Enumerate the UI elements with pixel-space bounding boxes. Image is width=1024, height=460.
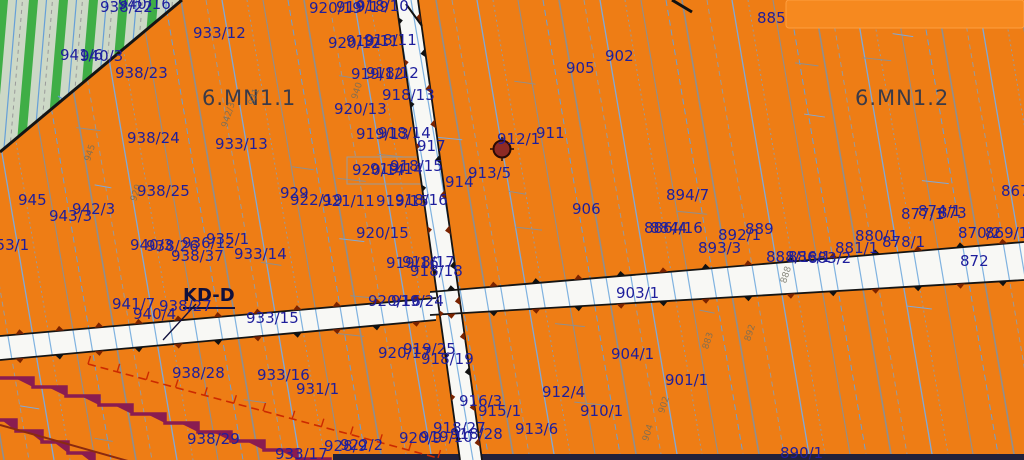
parcel-label: 903/1 [616,286,659,302]
zone-label-mn12: 6.MN1.2 [855,86,949,110]
parcel-label: 905 [566,61,595,77]
parcel-label: 933/15 [246,311,299,327]
parcel-label: 902 [605,49,634,65]
faint-parcel-label: 940 [350,81,365,100]
parcel-label: 918/28 [450,427,503,443]
parcel-label: 918/12 [366,66,419,82]
parcel-label: 938/25 [137,184,190,200]
parcel-label: 933/12 [193,26,246,42]
parcel-label: 893/3 [698,241,741,257]
map-canvas[interactable]: 6.MN1.1 6.MN1.2 KD-D 938/22940/16933/129… [0,0,1024,460]
parcel-label: 904/1 [611,347,654,363]
parcel-label: 918/10 [356,0,409,15]
parcel-label: 938/23 [115,66,168,82]
parcel-label: 911 [536,126,565,142]
faint-parcel-label: 902 [657,395,672,414]
parcel-label: 890/1 [780,446,823,460]
parcel-label: 906 [572,202,601,218]
parcel-label: 889 [745,222,774,238]
parcel-label: 933/13 [215,137,268,153]
parcel-label: 917 [417,139,446,155]
faint-parcel-label: 892 [743,323,758,342]
parcel-label: 918/19 [421,352,474,368]
parcel-label: 901/1 [665,373,708,389]
labels-layer: 6.MN1.1 6.MN1.2 KD-D 938/22940/16933/129… [0,0,1024,460]
parcel-label: 913/6 [515,422,558,438]
parcel-label: 919/24 [391,294,444,310]
parcel-label: 918/13 [382,88,435,104]
parcel-label: 953/1 [0,238,29,254]
parcel-label: 938/24 [127,131,180,147]
parcel-label: 918/11 [364,33,417,49]
parcel-label: 938/28 [172,366,225,382]
parcel-label: 933/17 [275,447,328,460]
parcel-label: 915/1 [478,404,521,420]
parcel-label: 940/16 [118,0,171,13]
faint-parcel-label: 888 [779,265,794,284]
parcel-label: 938/29 [187,432,240,448]
faint-parcel-label: 945 [83,143,98,162]
parcel-label: 943/3 [49,209,92,225]
parcel-label: 940/3 [80,49,123,65]
faint-parcel-label: 904 [641,423,656,442]
parcel-label: 922/2 [340,438,383,454]
parcel-label: 933/14 [234,247,287,263]
parcel-label: 931/1 [296,382,339,398]
parcel-label: 920/15 [356,226,409,242]
parcel-label: 921/11 [322,194,375,210]
parcel-label: 918/18 [410,264,463,280]
parcel-label: 872 [960,254,989,270]
parcel-label: 945 [18,193,47,209]
parcel-label: 894/7 [666,188,709,204]
faint-parcel-label: 883 [701,331,716,350]
parcel-label: 878/1 [882,235,925,251]
parcel-label: 873 [938,206,967,222]
parcel-label: 938/37 [171,249,224,265]
parcel-label: 910/1 [580,404,623,420]
parcel-label: 885 [757,11,786,27]
parcel-label: 938/27 [159,299,212,315]
parcel-label: 886/4 [644,221,687,237]
parcel-label: 920/13 [334,102,387,118]
parcel-label: 883/2 [808,251,851,267]
parcel-label: 914 [445,175,474,191]
parcel-label: 918/16 [395,193,448,209]
parcel-label: 912/1 [497,132,540,148]
parcel-label: 912/4 [542,385,585,401]
parcel-label: 918/15 [390,159,443,175]
parcel-label: 867 [1001,184,1024,200]
parcel-label: 869/1 [985,226,1024,242]
parcel-label: 913/5 [468,166,511,182]
